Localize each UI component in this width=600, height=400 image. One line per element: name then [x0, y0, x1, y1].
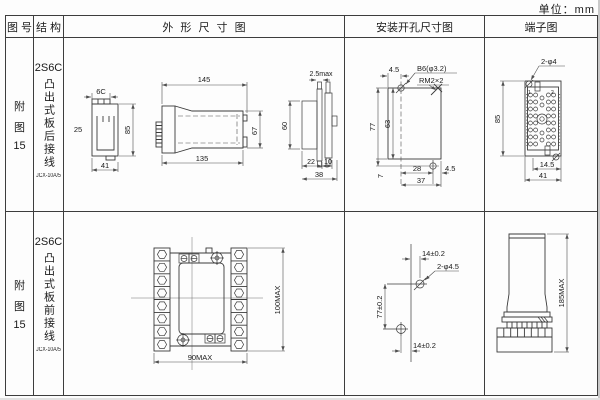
structure-model: 2S6C: [35, 62, 63, 74]
dim-tab-width: 6C: [96, 87, 106, 96]
structure-wiring: 凸出式板后接线: [41, 78, 57, 169]
dim-front-height: 85: [123, 126, 132, 134]
structure-wiring: 凸出式板前接线: [41, 252, 57, 343]
dim-front-width: 41: [101, 161, 109, 170]
outline-drawing-rear-wired: 6C 25 85 41: [64, 38, 344, 211]
spec-table: 图 号 结 构 外 形 尺 寸 图 安装开孔尺寸图 端子图 附 图 15 2S6…: [5, 15, 598, 396]
dim-socket-height: 100MAX: [273, 286, 282, 315]
row2-terminal-cell: 185MAX: [485, 212, 597, 395]
row2-outline-cell: 90MAX 100MAX: [64, 212, 345, 395]
header-mounting: 安装开孔尺寸图: [345, 16, 485, 38]
case-code: JCX-10A/5: [36, 347, 61, 353]
note-hole: B6(φ3.2): [417, 64, 447, 73]
pin-number-left: 1: [528, 90, 531, 96]
pin-number-right: 2: [551, 90, 554, 96]
mounting-drawing-rear-wired: 4.5 B6(φ3.2) RM2×2 77 63 7 28 4.5: [345, 38, 484, 211]
header-outline: 外 形 尺 寸 图: [64, 16, 345, 38]
drill-dims: 14±0.2 2-φ4.5 77±0.2 14±0.2: [375, 249, 459, 353]
dim-center-offset: 14.5: [540, 160, 555, 169]
dim-top-offset: 4.5: [389, 65, 399, 74]
outline-drawing-front-wired: 90MAX 100MAX: [64, 212, 344, 394]
dim-side-height: 67: [250, 127, 259, 135]
socket-front-view: [154, 248, 247, 351]
structure-model: 2S6C: [35, 236, 63, 248]
note-thread: RM2×2: [419, 76, 443, 85]
side-view: [156, 106, 247, 153]
row1-mounting-cell: 4.5 B6(φ3.2) RM2×2 77 63 7 28 4.5: [345, 38, 485, 212]
panel-view-dims: 2.5max 60 22 10 38: [280, 71, 337, 181]
cutout-outline: [388, 84, 442, 159]
row2-structure: 2S6C 凸出式板前接线 JCX-10A/5: [34, 212, 64, 395]
dim-hole-span: 28: [413, 164, 421, 173]
terminal-dims: 2-φ4 85 14.5 41: [493, 57, 565, 182]
dim-panel-d2: 10: [324, 159, 332, 166]
dim-total-height: 185MAX: [557, 279, 566, 308]
dim-total-height: 77: [368, 123, 377, 131]
dim-hole-span: 77±0.2: [375, 296, 384, 319]
header-fig-no: 图 号: [6, 16, 34, 38]
fig-char: 附: [14, 98, 25, 114]
dim-side-top: 145: [198, 75, 211, 84]
note-terminal-holes: 2-φ4: [541, 57, 557, 66]
note-hole: 2-φ4.5: [437, 262, 459, 271]
dim-socket-width: 90MAX: [188, 353, 213, 362]
dim-side-bottom: 135: [196, 154, 209, 163]
dim-bottom-offset: 14±0.2: [413, 341, 436, 350]
front-view: [92, 99, 118, 160]
dim-bottom-offset: 7: [376, 174, 385, 178]
header-terminal: 端子图: [485, 16, 597, 38]
terminal-drawing: 1 2 2-φ4 85 14.5 41: [485, 38, 595, 211]
front-view-dims: 6C 25 85 41: [74, 87, 136, 172]
fig-char: 图: [14, 298, 25, 314]
row2-fig-no: 附 图 15: [6, 212, 34, 395]
relay-side-view: [497, 234, 552, 352]
dim-inner-height: 63: [383, 120, 392, 128]
dim-panel-width: 38: [315, 170, 323, 179]
row1-fig-no: 附 图 15: [6, 38, 34, 212]
row1-terminal-cell: 1 2 2-φ4 85 14.5 41: [485, 38, 597, 212]
fig-char: 图: [14, 119, 25, 135]
row1-outline-cell: 6C 25 85 41: [64, 38, 345, 212]
fig-number: 15: [13, 319, 25, 331]
dim-side-offset: 4.5: [445, 164, 455, 173]
case-code: JCX-10A/5: [36, 173, 61, 179]
socket-dims: 90MAX 100MAX: [154, 248, 285, 364]
dim-panel-thickness: 2.5max: [310, 71, 333, 78]
row1-structure: 2S6C 凸出式板后接线 JCX-10A/5: [34, 38, 64, 212]
dim-total-width: 37: [417, 176, 425, 185]
dim-top-offset: 14±0.2: [422, 249, 445, 258]
row2-mounting-cell: 14±0.2 2-φ4.5 77±0.2 14±0.2: [345, 212, 485, 395]
mounting-drawing-front-wired: 14±0.2 2-φ4.5 77±0.2 14±0.2: [345, 212, 484, 394]
dim-panel-d1: 22: [307, 159, 315, 166]
dim-panel-height: 60: [280, 122, 289, 130]
header-structure: 结 构: [34, 16, 64, 38]
fig-char: 附: [14, 277, 25, 293]
relay-side-drawing: 185MAX: [485, 212, 595, 394]
center-lines: [131, 237, 263, 370]
dim-terminal-height: 85: [493, 115, 502, 123]
mounting-dims: 4.5 B6(φ3.2) RM2×2 77 63 7 28 4.5: [368, 64, 457, 187]
fig-number: 15: [13, 140, 25, 152]
relay-side-dims: 185MAX: [547, 234, 569, 352]
dim-front-side: 25: [74, 125, 82, 134]
dim-terminal-width: 41: [539, 171, 547, 180]
panel-view: [302, 82, 337, 167]
